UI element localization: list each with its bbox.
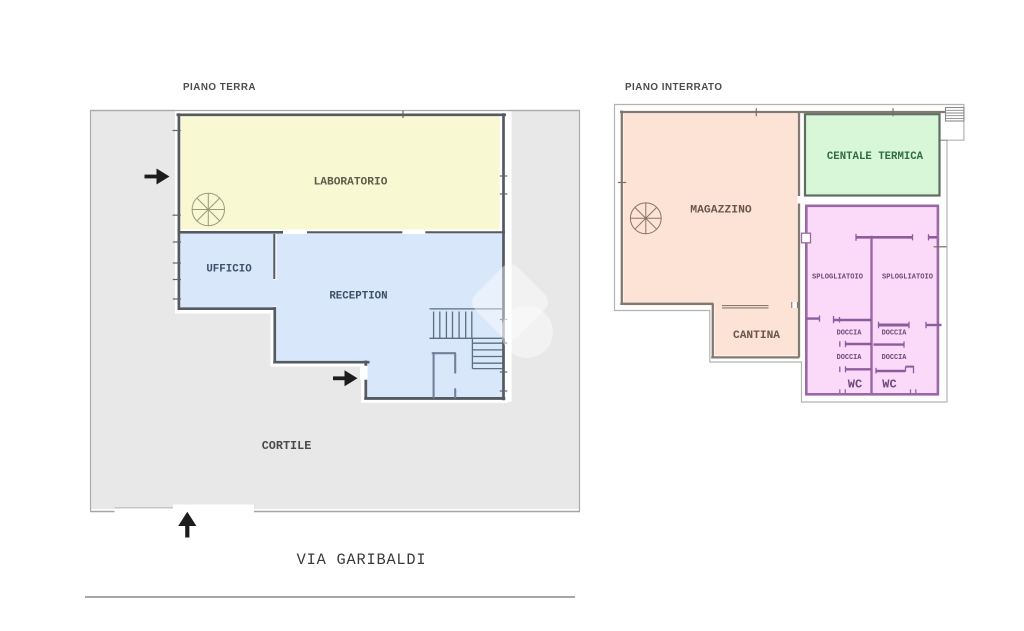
- svg-text:CENTALE TERMICA: CENTALE TERMICA: [827, 151, 924, 163]
- svg-text:DOCCIA: DOCCIA: [882, 330, 908, 338]
- svg-text:DOCCIA: DOCCIA: [837, 330, 863, 338]
- svg-text:WC: WC: [882, 378, 896, 392]
- svg-text:PIANO TERRA: PIANO TERRA: [183, 82, 256, 93]
- svg-text:CORTILE: CORTILE: [262, 439, 312, 453]
- svg-text:VIA GARIBALDI: VIA GARIBALDI: [297, 551, 427, 569]
- svg-text:LABORATORIO: LABORATORIO: [314, 177, 388, 189]
- svg-text:PIANO INTERRATO: PIANO INTERRATO: [625, 82, 723, 93]
- svg-text:DOCCIA: DOCCIA: [882, 354, 908, 362]
- svg-text:SPLOGLIATOIO: SPLOGLIATOIO: [882, 274, 933, 282]
- svg-text:RECEPTION: RECEPTION: [329, 291, 387, 303]
- svg-text:SPLOGLIATOIO: SPLOGLIATOIO: [812, 274, 863, 282]
- svg-text:UFFICIO: UFFICIO: [206, 264, 252, 276]
- svg-text:DOCCIA: DOCCIA: [837, 354, 863, 362]
- svg-text:CANTINA: CANTINA: [733, 330, 780, 342]
- svg-text:MAGAZZINO: MAGAZZINO: [690, 205, 752, 217]
- svg-text:WC: WC: [848, 378, 862, 392]
